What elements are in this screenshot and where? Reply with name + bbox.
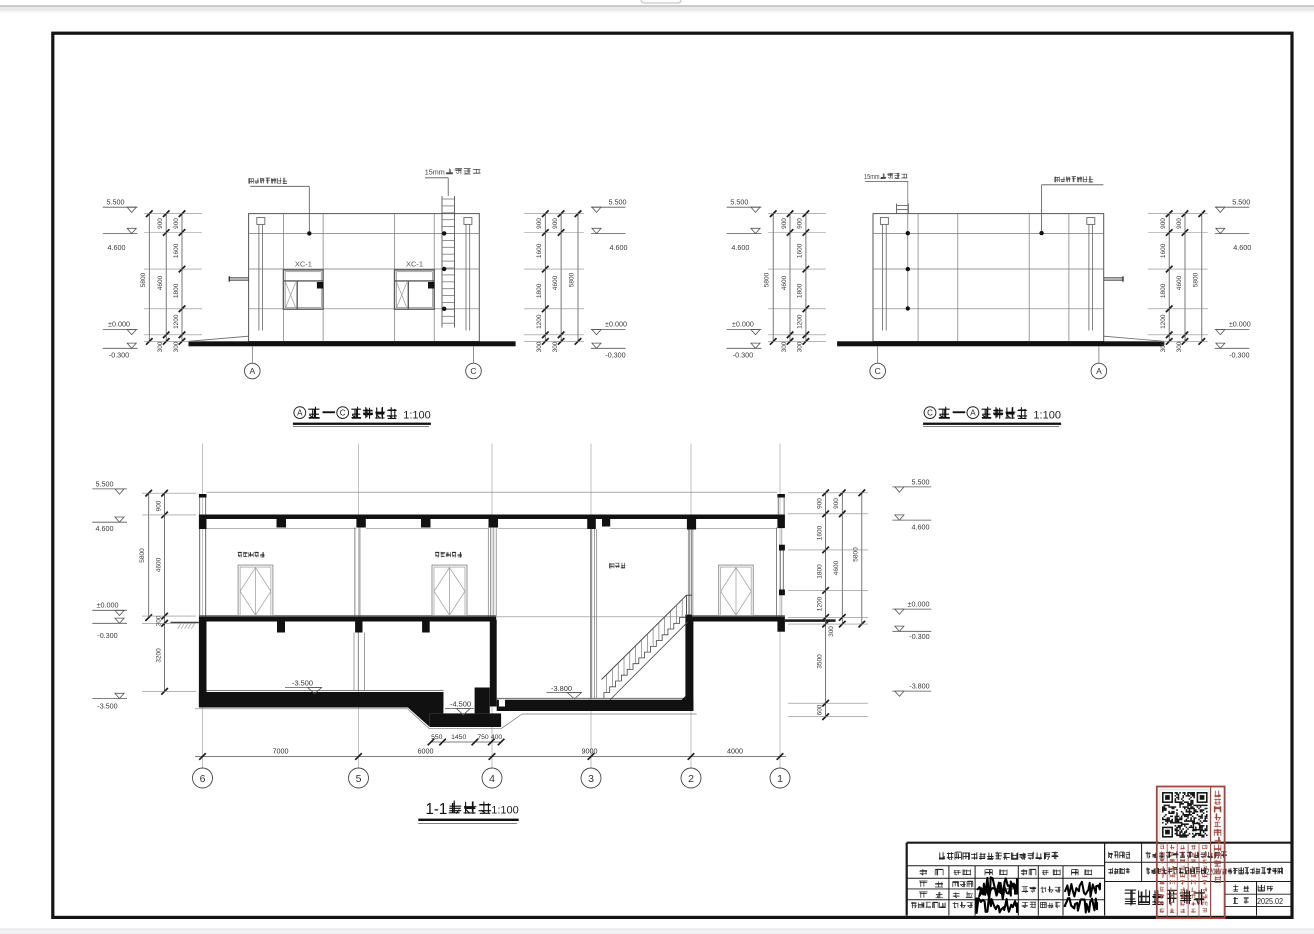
svg-text:4600: 4600 xyxy=(1176,275,1183,290)
svg-text:300: 300 xyxy=(828,626,835,637)
svg-text:1:100: 1:100 xyxy=(491,805,519,817)
svg-text:900: 900 xyxy=(797,218,804,229)
svg-text:1200: 1200 xyxy=(1160,314,1167,329)
svg-text:900: 900 xyxy=(173,218,180,229)
svg-text:1:100: 1:100 xyxy=(1033,410,1061,422)
svg-text:5.500: 5.500 xyxy=(912,477,930,486)
svg-text:5800: 5800 xyxy=(764,272,771,287)
svg-text:4: 4 xyxy=(489,773,495,785)
svg-text:4.600: 4.600 xyxy=(610,243,628,252)
svg-text:600: 600 xyxy=(816,704,823,715)
svg-text:4.600: 4.600 xyxy=(912,523,930,532)
svg-text:4000: 4000 xyxy=(727,747,743,756)
svg-text:5: 5 xyxy=(356,773,362,785)
svg-text:1600: 1600 xyxy=(797,243,804,258)
svg-text:C: C xyxy=(927,409,933,418)
svg-text:1450: 1450 xyxy=(451,734,466,741)
svg-text:750: 750 xyxy=(477,734,489,741)
svg-text:900: 900 xyxy=(536,218,543,229)
svg-text:3500: 3500 xyxy=(816,654,823,669)
svg-text:9000: 9000 xyxy=(582,747,598,756)
svg-text:1800: 1800 xyxy=(536,283,543,298)
svg-text:5800: 5800 xyxy=(852,547,859,562)
svg-text:300: 300 xyxy=(781,341,788,352)
svg-text:1600: 1600 xyxy=(1160,243,1167,258)
svg-text:15mm: 15mm xyxy=(864,172,880,181)
svg-text:6000: 6000 xyxy=(418,747,434,756)
svg-text:7000: 7000 xyxy=(273,747,289,756)
svg-text:5.500: 5.500 xyxy=(96,479,114,488)
svg-text:1800: 1800 xyxy=(816,564,823,579)
svg-text:1600: 1600 xyxy=(536,243,543,258)
svg-text:1:100: 1:100 xyxy=(403,410,431,422)
svg-text:300: 300 xyxy=(1160,341,1167,352)
svg-text:1800: 1800 xyxy=(1160,283,1167,298)
svg-text:900: 900 xyxy=(816,498,823,509)
svg-text:900: 900 xyxy=(833,498,840,509)
svg-text:4600: 4600 xyxy=(552,275,559,290)
svg-text:±0.000: ±0.000 xyxy=(605,319,627,328)
svg-text:1600: 1600 xyxy=(816,525,823,540)
svg-text:A: A xyxy=(970,409,976,418)
svg-text:5.500: 5.500 xyxy=(609,198,627,207)
svg-text:1800: 1800 xyxy=(797,283,804,298)
svg-text:1200: 1200 xyxy=(536,314,543,329)
svg-text:±0.000: ±0.000 xyxy=(908,600,930,609)
svg-text:2: 2 xyxy=(688,773,694,785)
svg-text:1-1: 1-1 xyxy=(426,801,448,818)
svg-text:4600: 4600 xyxy=(833,560,840,575)
svg-text:900: 900 xyxy=(155,500,162,511)
svg-text:-3.500: -3.500 xyxy=(97,702,117,711)
svg-text:900: 900 xyxy=(552,218,559,229)
svg-text:4600: 4600 xyxy=(155,557,162,572)
svg-text:300: 300 xyxy=(1176,341,1183,352)
svg-text:4.600: 4.600 xyxy=(108,243,126,252)
svg-text:5.500: 5.500 xyxy=(107,198,125,207)
svg-text:550: 550 xyxy=(431,734,443,741)
svg-text:±0.000: ±0.000 xyxy=(108,319,130,328)
svg-text:900: 900 xyxy=(1160,218,1167,229)
svg-text:-0.300: -0.300 xyxy=(733,351,753,360)
svg-text:±0.000: ±0.000 xyxy=(732,319,754,328)
svg-text:XC-1: XC-1 xyxy=(295,260,312,269)
svg-text:6: 6 xyxy=(200,773,206,785)
svg-text:4.600: 4.600 xyxy=(96,524,114,533)
svg-text:1200: 1200 xyxy=(797,314,804,329)
svg-text:C: C xyxy=(340,409,346,418)
svg-text:A: A xyxy=(1096,366,1102,376)
svg-text:900: 900 xyxy=(157,218,164,229)
svg-text:5.500: 5.500 xyxy=(1232,198,1250,207)
svg-text:A: A xyxy=(249,366,255,376)
svg-text:-3.800: -3.800 xyxy=(551,684,572,693)
svg-text:C: C xyxy=(875,366,881,376)
svg-text:-0.300: -0.300 xyxy=(605,351,625,360)
svg-text:300: 300 xyxy=(536,341,543,352)
svg-text:-0.300: -0.300 xyxy=(909,632,929,641)
svg-text:3200: 3200 xyxy=(155,648,162,663)
svg-text:15mm: 15mm xyxy=(425,167,445,176)
svg-text:-0.300: -0.300 xyxy=(109,351,129,360)
svg-text:1600: 1600 xyxy=(173,243,180,258)
svg-text:300: 300 xyxy=(157,341,164,352)
svg-text:5800: 5800 xyxy=(569,272,576,287)
svg-text:300: 300 xyxy=(155,615,162,626)
svg-text:1800: 1800 xyxy=(173,283,180,298)
svg-text:-3.800: -3.800 xyxy=(909,682,929,691)
svg-text:1: 1 xyxy=(777,773,783,785)
svg-text:A: A xyxy=(297,409,303,418)
svg-text:900: 900 xyxy=(1176,218,1183,229)
svg-text:±0.000: ±0.000 xyxy=(97,601,119,610)
svg-text:-0.300: -0.300 xyxy=(1229,351,1249,360)
svg-text:300: 300 xyxy=(552,341,559,352)
svg-text:XC-1: XC-1 xyxy=(406,260,423,269)
svg-text:-3.500: -3.500 xyxy=(292,679,313,688)
svg-text:3: 3 xyxy=(588,773,594,785)
svg-text:C: C xyxy=(470,366,476,376)
svg-text:4.600: 4.600 xyxy=(731,243,749,252)
svg-text:300: 300 xyxy=(797,341,804,352)
svg-text:4.600: 4.600 xyxy=(1233,243,1251,252)
svg-text:5800: 5800 xyxy=(139,548,146,563)
svg-text:-0.300: -0.300 xyxy=(97,631,117,640)
svg-text:5800: 5800 xyxy=(140,272,147,287)
svg-text:±0.000: ±0.000 xyxy=(1229,319,1251,328)
svg-text:4600: 4600 xyxy=(157,275,164,290)
svg-text:-4.500: -4.500 xyxy=(450,699,471,708)
svg-text:400: 400 xyxy=(491,734,503,741)
svg-text:1200: 1200 xyxy=(173,314,180,329)
svg-text:2025.02: 2025.02 xyxy=(1257,897,1283,906)
svg-text:300: 300 xyxy=(173,341,180,352)
svg-text:4600: 4600 xyxy=(781,275,788,290)
svg-text:900: 900 xyxy=(781,218,788,229)
svg-text:1200: 1200 xyxy=(816,596,823,611)
svg-text:5.500: 5.500 xyxy=(730,198,748,207)
svg-text:5800: 5800 xyxy=(1192,272,1199,287)
